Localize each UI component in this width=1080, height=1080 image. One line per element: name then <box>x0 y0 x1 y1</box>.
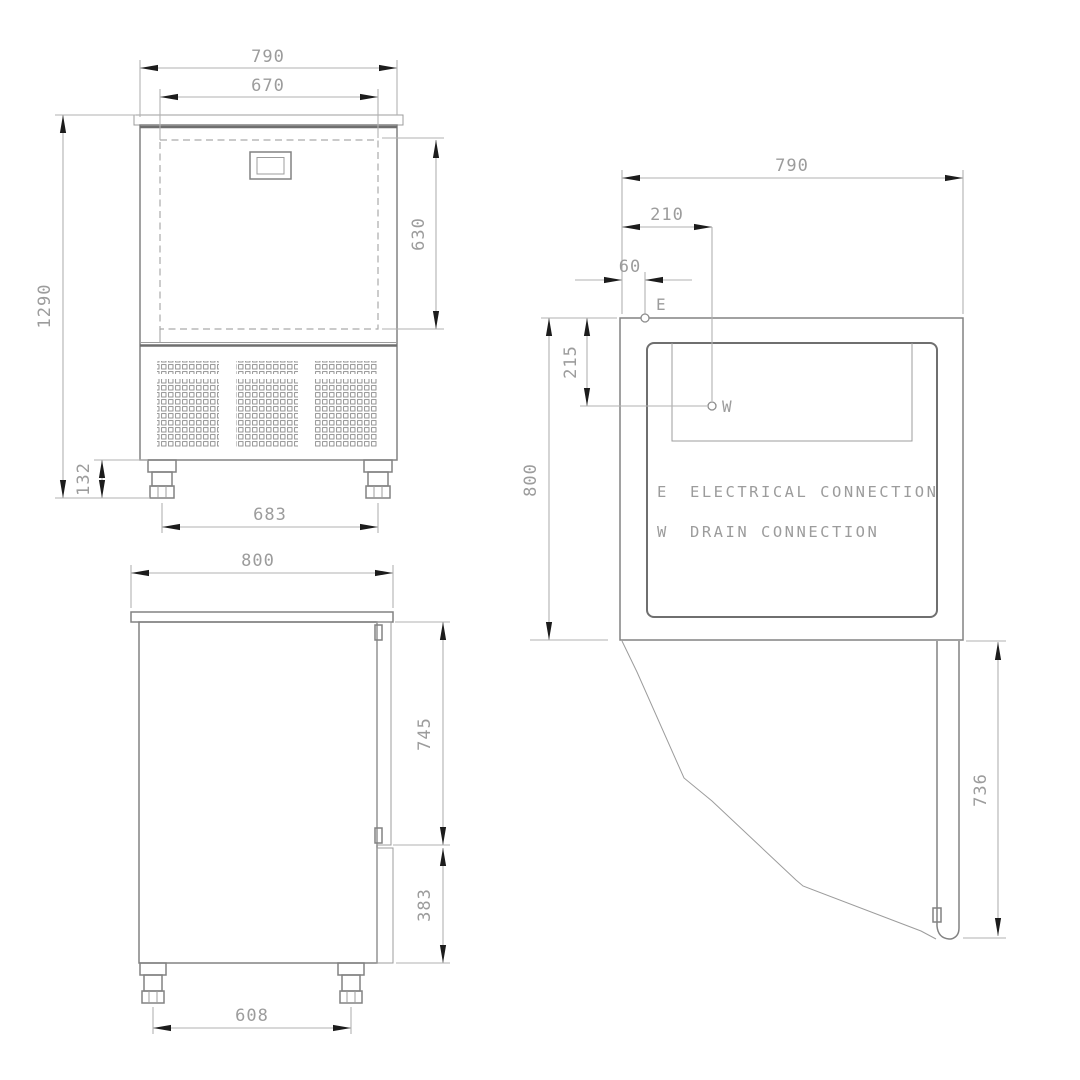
electrical-point-label: E <box>656 295 666 314</box>
dim-front-inner-width: 670 <box>160 76 378 140</box>
dim-label-front-overall-height: 1290 <box>35 284 55 329</box>
dim-plan-drain-offset-x: 210 <box>622 205 712 227</box>
plan-rear-recess <box>672 343 912 441</box>
drawing-canvas: 790 670 1290 630 132 <box>0 0 1080 1080</box>
legend-drain-label: DRAIN CONNECTION <box>690 523 879 541</box>
front-feet <box>148 460 392 498</box>
dim-front-foot-spacing: 683 <box>162 503 378 533</box>
electrical-connection-point <box>641 314 649 322</box>
dim-plan-drain-offset-y: 215 <box>561 318 587 406</box>
dim-front-opening-height: 630 <box>382 138 444 329</box>
dim-label-plan-overall-width: 790 <box>775 156 809 176</box>
plan-connection-points: E W <box>580 227 732 416</box>
dim-front-foot-height: 132 <box>74 460 148 498</box>
technical-drawing: 790 670 1290 630 132 <box>0 0 1080 1080</box>
side-foot-right <box>338 963 364 1003</box>
side-foot-left <box>140 963 166 1003</box>
dim-label-front-opening-height: 630 <box>409 217 429 251</box>
dim-label-side-overall-depth: 800 <box>241 551 275 571</box>
dim-label-front-inner-width: 670 <box>251 76 285 96</box>
side-door-hinge-top <box>375 625 382 640</box>
dim-plan-electrical-offset-x: 60 <box>575 257 692 280</box>
dim-label-front-foot-spacing: 683 <box>253 505 287 525</box>
side-door-hinge-bottom <box>375 828 382 843</box>
dim-side-door-height: 745 <box>393 622 450 845</box>
legend-electrical-label: ELECTRICAL CONNECTION <box>690 483 938 501</box>
plan-open-door <box>622 641 959 939</box>
side-door <box>375 622 391 845</box>
dim-label-side-foot-spacing: 608 <box>235 1006 269 1026</box>
dim-label-front-foot-height: 132 <box>74 462 94 496</box>
dim-side-base-height: 383 <box>396 848 450 963</box>
dim-label-plan-door-width: 736 <box>971 773 991 807</box>
drain-connection-point <box>708 402 716 410</box>
dim-label-plan-overall-depth: 800 <box>521 463 541 497</box>
legend-electrical-symbol: E <box>657 483 669 501</box>
dim-label-front-overall-width: 790 <box>251 47 285 67</box>
plan-view: E W 790 210 60 <box>521 156 1006 939</box>
side-unit-outline <box>131 612 393 963</box>
front-control-display <box>250 152 291 179</box>
dim-label-side-door-height: 745 <box>415 717 435 751</box>
plan-inner-wall <box>647 343 937 617</box>
side-view: 800 745 383 608 <box>131 551 450 1034</box>
dim-label-side-base-height: 383 <box>415 888 435 922</box>
front-ventilation-grille <box>157 361 377 448</box>
front-foot-left <box>148 460 176 498</box>
plan-unit-outline <box>620 318 963 640</box>
dim-front-overall-height: 1290 <box>35 115 150 498</box>
side-feet <box>140 963 364 1003</box>
dim-label-plan-drain-offset-x: 210 <box>650 205 684 225</box>
dim-label-plan-electrical-offset-x: 60 <box>619 257 641 277</box>
dim-side-overall-depth: 800 <box>131 551 393 608</box>
dim-plan-door-width: 736 <box>963 641 1006 938</box>
front-foot-right <box>364 460 392 498</box>
open-door-panel <box>937 641 959 939</box>
drain-point-label: W <box>722 397 732 416</box>
dim-label-plan-drain-offset-y: 215 <box>561 345 581 379</box>
dim-side-foot-spacing: 608 <box>153 1006 351 1034</box>
door-swing-path <box>622 641 936 939</box>
legend-drain-symbol: W <box>657 523 669 541</box>
front-view: 790 670 1290 630 132 <box>35 47 444 533</box>
front-door-opening <box>160 140 378 329</box>
dim-plan-overall-width: 790 <box>622 156 963 314</box>
plan-legend: E ELECTRICAL CONNECTION W DRAIN CONNECTI… <box>657 483 938 541</box>
